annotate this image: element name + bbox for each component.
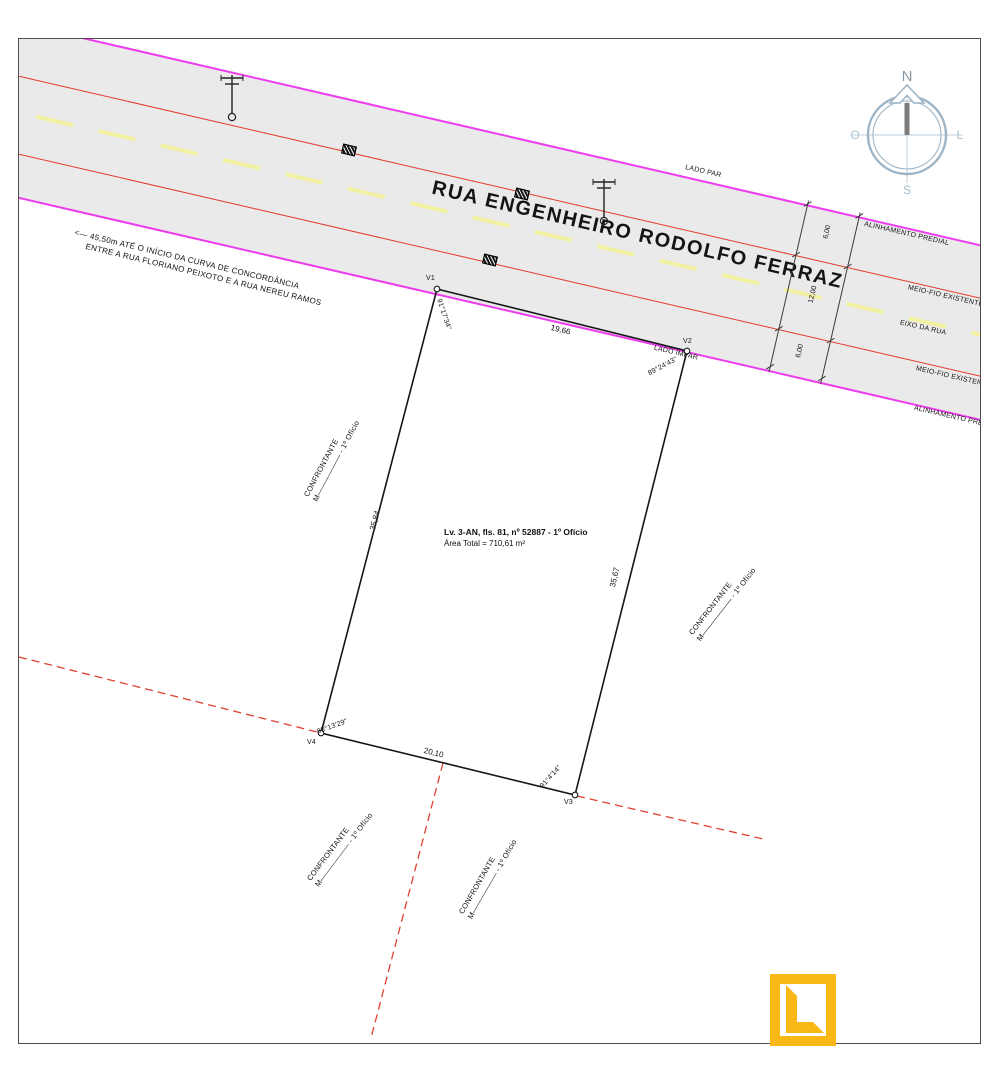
vertex-id-v4: V4 <box>307 739 316 746</box>
survey-plan-page: { "compass": { "north": "N", "south": "S… <box>0 0 999 1080</box>
compass-s: S <box>903 183 911 197</box>
logo-l-icon <box>780 984 826 1036</box>
compass-o: O <box>850 128 859 142</box>
compass-n: N <box>902 68 913 85</box>
vertex-id-v1: V1 <box>426 275 435 282</box>
lot-registry-block: Lv. 3-AN, fls. 81, nº 52887 - 1º Ofício … <box>444 526 588 550</box>
brand-logo <box>770 974 836 1046</box>
compass-l: L <box>957 128 964 142</box>
vertex-id-v3: V3 <box>564 799 573 806</box>
area-total-text: Área Total = 710,61 m² <box>444 538 588 550</box>
compass-rose: N O L S <box>841 57 973 221</box>
vertex-id-v2: V2 <box>683 338 692 345</box>
registry-text: Lv. 3-AN, fls. 81, nº 52887 - 1º Ofício <box>444 526 588 538</box>
drawing-frame: RUA ENGENHEIRO RODOLFO FERRAZ LADO PAR L… <box>18 38 981 1044</box>
